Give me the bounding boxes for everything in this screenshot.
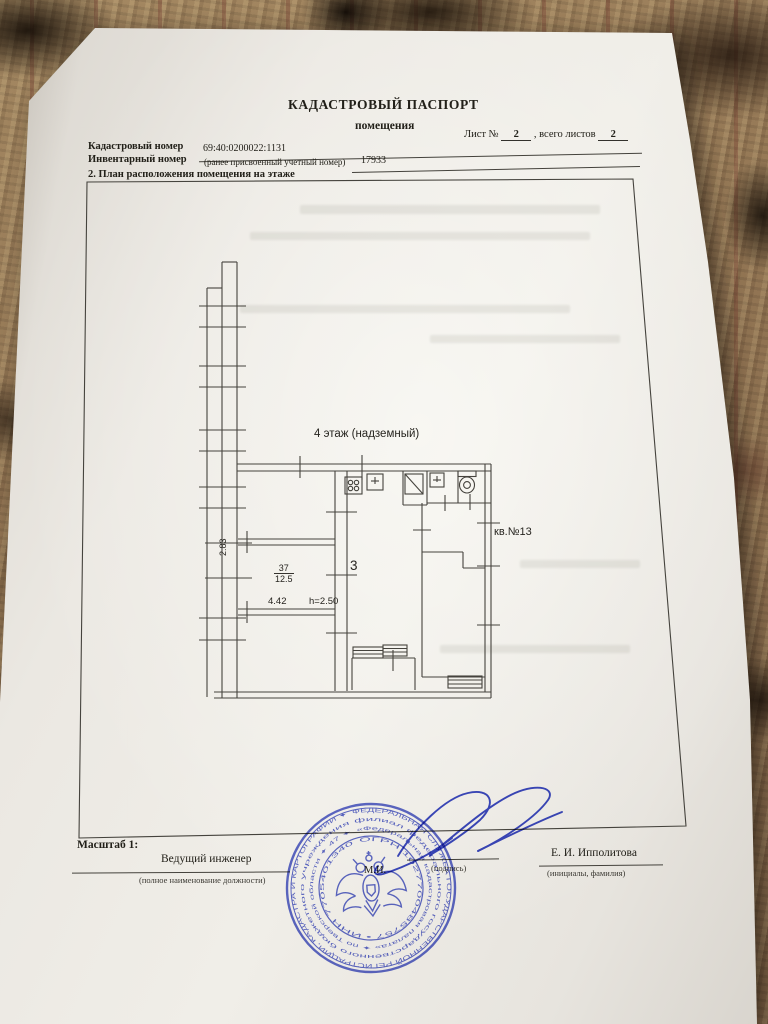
threshold-hatch	[353, 645, 482, 688]
handwritten-signature	[330, 768, 650, 878]
dimension-side-label: 2.83	[218, 538, 228, 556]
dimension-width-label: 4.42	[268, 596, 287, 607]
plan-border-box	[79, 179, 686, 838]
toilet-symbol	[458, 471, 476, 493]
room-area-fraction: 37 12.5	[274, 563, 294, 584]
position-note: (полное наименование должности)	[139, 875, 266, 885]
shower-symbol	[405, 474, 423, 494]
dimension-height-label: h=2.50	[309, 596, 338, 607]
floor-label: 4 этаж (надземный)	[314, 428, 419, 440]
document-photo: КАДАСТРОВЫЙ ПАСПОРТ помещения Лист № 2 ,…	[0, 0, 768, 1024]
scale-label: Масштаб 1:	[77, 839, 138, 851]
room-number: 37	[274, 563, 294, 574]
paper-sheet: КАДАСТРОВЫЙ ПАСПОРТ помещения Лист № 2 ,…	[0, 0, 768, 1024]
apartment-number-label: кв.№13	[494, 526, 532, 538]
kitchen-sink-symbol	[367, 474, 383, 490]
room-area: 12.5	[274, 574, 294, 584]
wc-sink-symbol	[430, 473, 444, 487]
hall-number-label: 3	[350, 558, 358, 573]
engineer-position: Ведущий инженер	[161, 853, 251, 865]
